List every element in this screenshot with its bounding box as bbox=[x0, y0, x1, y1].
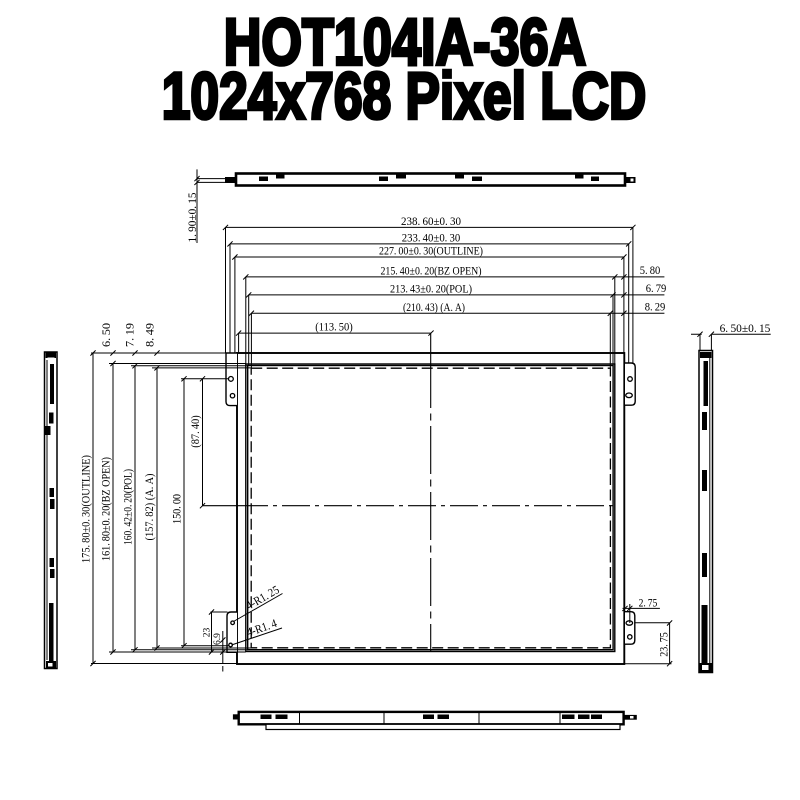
svg-text:23. 75: 23. 75 bbox=[657, 632, 671, 657]
svg-text:213. 43±0. 20(POL): 213. 43±0. 20(POL) bbox=[390, 281, 472, 295]
svg-text:6. 50: 6. 50 bbox=[99, 323, 113, 347]
svg-text:8. 29: 8. 29 bbox=[645, 300, 666, 314]
svg-text:6.9: 6.9 bbox=[213, 633, 223, 645]
svg-text:160. 42±0. 20(POL): 160. 42±0. 20(POL) bbox=[121, 469, 135, 545]
svg-text:227. 00±0. 30(OUTLINE): 227. 00±0. 30(OUTLINE) bbox=[379, 244, 483, 258]
svg-text:1024x768 Pixel LCD: 1024x768 Pixel LCD bbox=[162, 59, 647, 133]
svg-text:1. 90±0. 15: 1. 90±0. 15 bbox=[185, 193, 199, 243]
svg-text:6. 50±0. 15: 6. 50±0. 15 bbox=[720, 321, 771, 335]
svg-text:7. 19: 7. 19 bbox=[123, 323, 137, 347]
svg-text:215. 40±0. 20(BZ OPEN): 215. 40±0. 20(BZ OPEN) bbox=[381, 263, 482, 277]
svg-text:(210. 43) (A. A): (210. 43) (A. A) bbox=[403, 300, 465, 314]
svg-text:(87. 40): (87. 40) bbox=[188, 415, 202, 448]
svg-text:161. 80±0. 20(BZ OPEN): 161. 80±0. 20(BZ OPEN) bbox=[99, 457, 113, 561]
svg-text:8. 49: 8. 49 bbox=[143, 323, 157, 347]
svg-text:175. 80±0. 30(OUTLINE): 175. 80±0. 30(OUTLINE) bbox=[79, 455, 93, 563]
svg-text:23: 23 bbox=[203, 628, 213, 638]
svg-text:233. 40±0. 30: 233. 40±0. 30 bbox=[402, 230, 461, 244]
svg-text:5. 80: 5. 80 bbox=[640, 263, 661, 277]
svg-text:238. 60±0. 30: 238. 60±0. 30 bbox=[401, 214, 461, 228]
svg-text:(113. 50): (113. 50) bbox=[315, 320, 353, 334]
svg-text:150. 00: 150. 00 bbox=[170, 494, 184, 524]
svg-text:(157. 82) (A. A): (157. 82) (A. A) bbox=[142, 474, 156, 541]
svg-text:2. 75: 2. 75 bbox=[639, 596, 658, 610]
svg-text:6. 79: 6. 79 bbox=[646, 281, 667, 295]
